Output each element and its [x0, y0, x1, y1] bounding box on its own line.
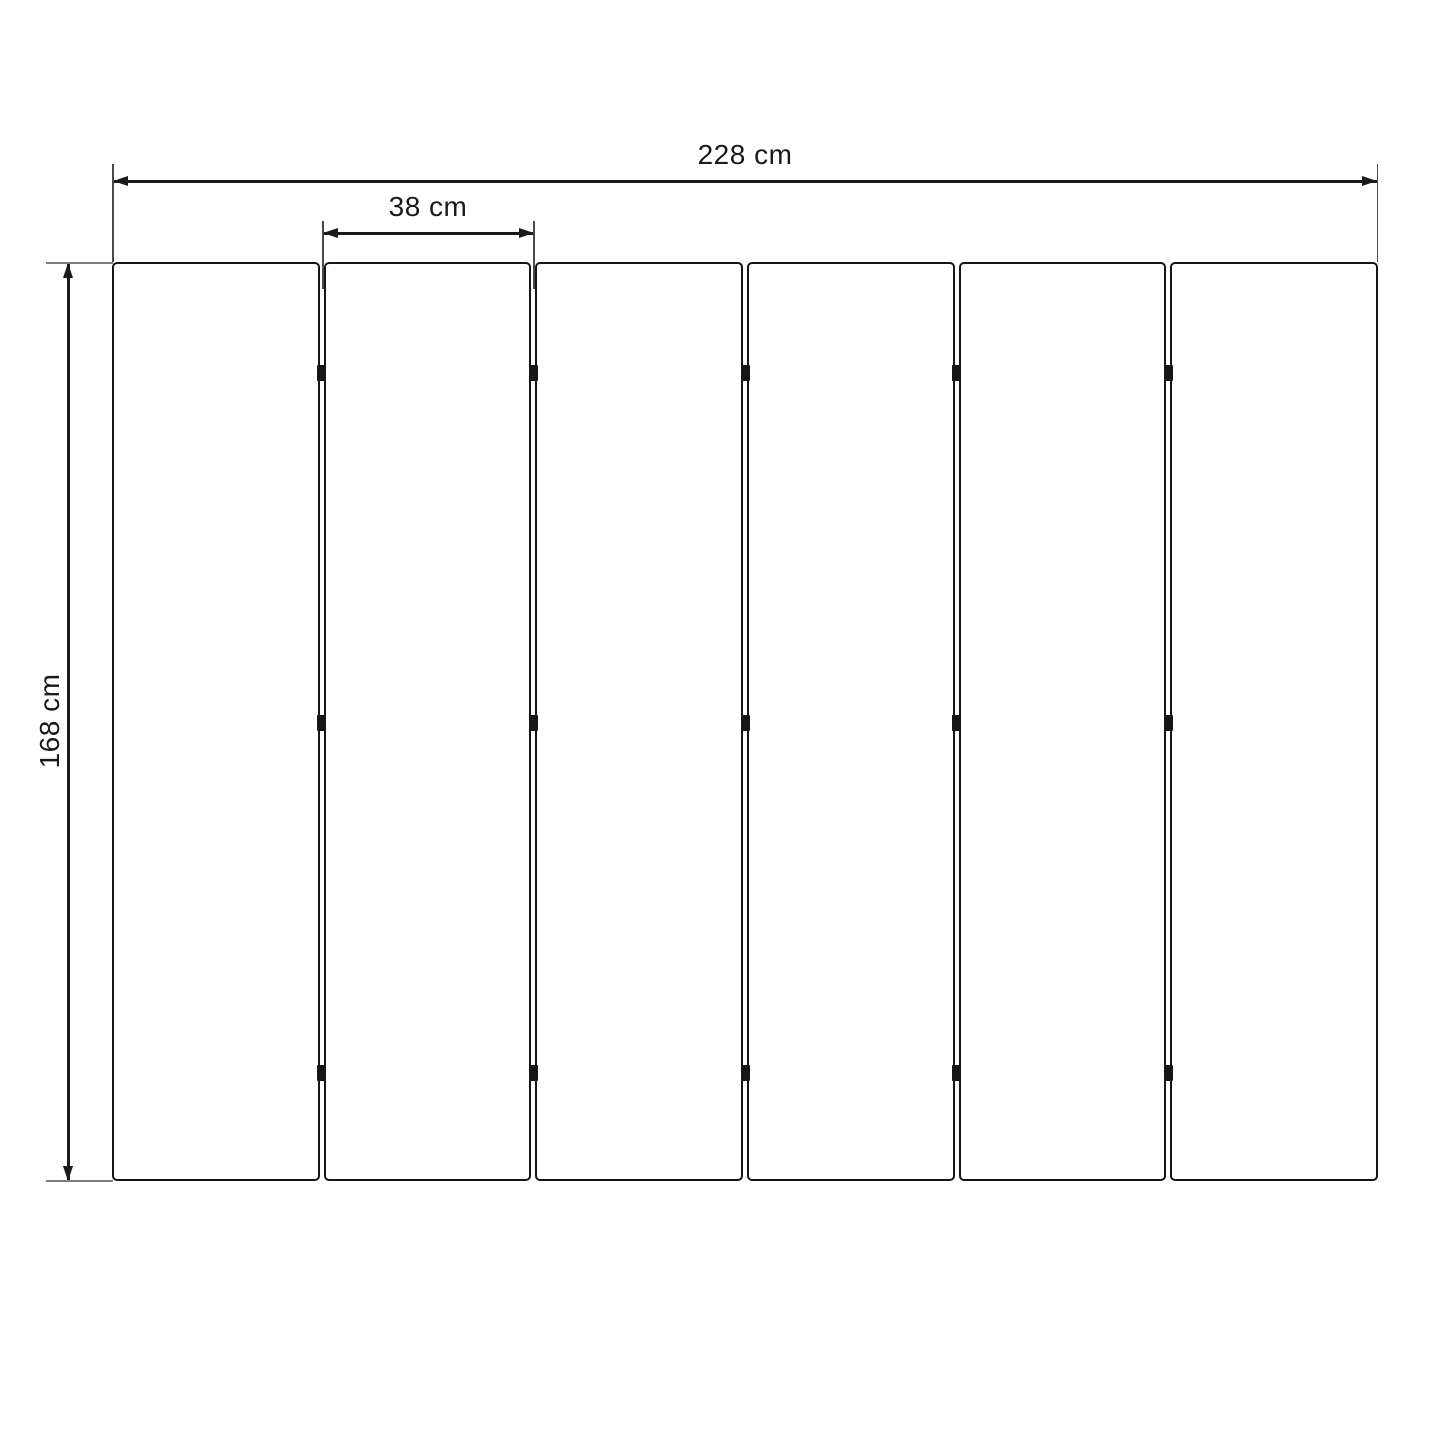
- hinge-icon: [952, 1065, 961, 1081]
- total-width-dimension-line: [113, 180, 1377, 183]
- dimension-diagram: 228 cm 38 cm 168 cm: [0, 0, 1445, 1445]
- panel-width-dimension-line: [323, 232, 534, 235]
- height-dimension-label: 168 cm: [36, 674, 64, 769]
- arrow-right-icon: [519, 228, 534, 238]
- hinge-icon: [1164, 1065, 1173, 1081]
- total-width-dimension-label: 228 cm: [113, 141, 1377, 169]
- panel: [959, 262, 1167, 1181]
- hinge-icon: [1164, 365, 1173, 381]
- hinge-icon: [529, 715, 538, 731]
- hinge-icon: [741, 1065, 750, 1081]
- height-dimension-line: [67, 263, 70, 1181]
- hinge-icon: [317, 1065, 326, 1081]
- panel: [112, 262, 320, 1181]
- panels-row: [112, 262, 1378, 1181]
- arrow-down-icon: [63, 1166, 73, 1181]
- hinge-icon: [1164, 715, 1173, 731]
- hinge-icon: [741, 715, 750, 731]
- total-width-extension-line-right: [1377, 164, 1379, 262]
- height-extension-line-bottom: [46, 1180, 113, 1182]
- arrow-right-icon: [1362, 176, 1377, 186]
- hinge-icon: [317, 715, 326, 731]
- total-width-extension-line-left: [112, 164, 114, 262]
- panel: [747, 262, 955, 1181]
- hinge-icon: [952, 365, 961, 381]
- hinge-icon: [529, 365, 538, 381]
- arrow-left-icon: [113, 176, 128, 186]
- hinge-icon: [952, 715, 961, 731]
- arrow-up-icon: [63, 263, 73, 278]
- hinge-icon: [317, 365, 326, 381]
- panel-width-dimension-label: 38 cm: [322, 193, 534, 221]
- panel: [535, 262, 743, 1181]
- hinge-icon: [741, 365, 750, 381]
- hinge-icon: [529, 1065, 538, 1081]
- panel: [1170, 262, 1378, 1181]
- arrow-left-icon: [323, 228, 338, 238]
- height-extension-line-top: [46, 262, 113, 264]
- panel: [324, 262, 532, 1181]
